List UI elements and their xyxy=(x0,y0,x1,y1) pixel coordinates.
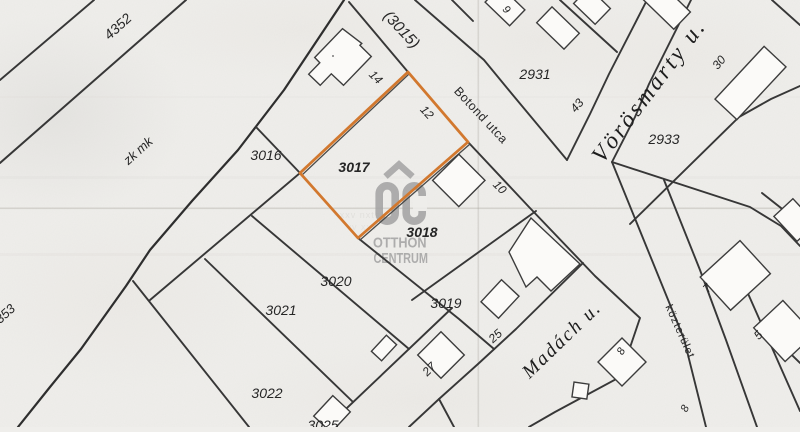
svg-text:3019: 3019 xyxy=(430,295,461,311)
svg-text:3016: 3016 xyxy=(250,147,281,163)
svg-text:3021: 3021 xyxy=(265,302,296,318)
svg-text:CENTRUM: CENTRUM xyxy=(374,250,429,267)
svg-text:3025: 3025 xyxy=(307,417,338,427)
svg-text:3020: 3020 xyxy=(320,273,351,289)
svg-text:3022: 3022 xyxy=(251,385,282,401)
svg-text:3017: 3017 xyxy=(338,159,370,175)
svg-text:3018: 3018 xyxy=(406,224,437,240)
svg-text:2933: 2933 xyxy=(647,131,679,147)
svg-text:2931: 2931 xyxy=(518,66,550,82)
